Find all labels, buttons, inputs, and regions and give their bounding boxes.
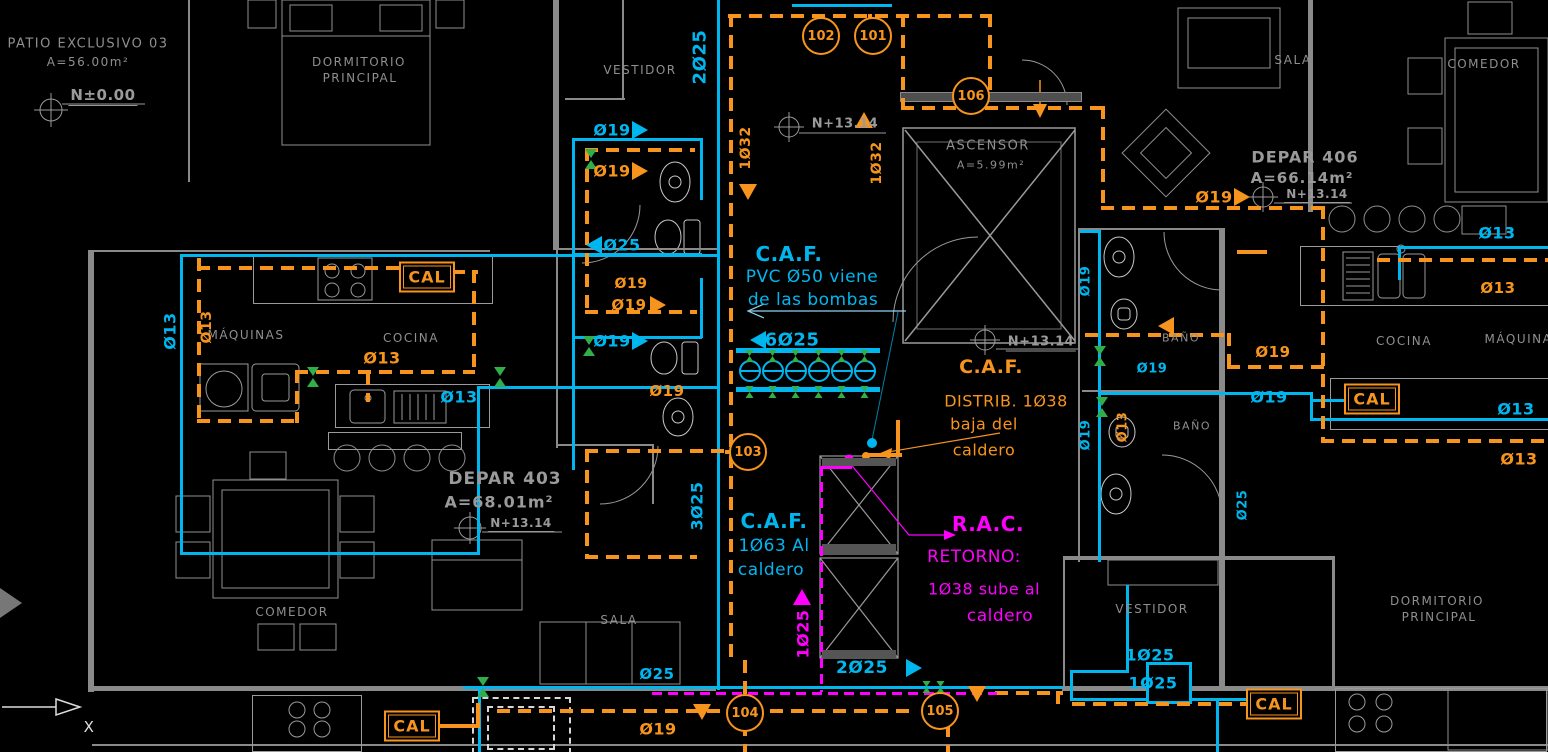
wall-segment	[188, 0, 190, 182]
pipe-hot-water-segment	[1377, 258, 1548, 262]
viewport-triangle-icon	[0, 588, 22, 618]
note-caf-distrib-title: C.A.F.	[959, 356, 1023, 378]
pipe-size-label: Ø13	[1500, 450, 1537, 469]
valve-icon	[746, 386, 755, 398]
flow-arrow-icon	[968, 686, 986, 702]
pipe-cold-water-segment	[1080, 230, 1100, 233]
room-label: PRINCIPAL	[1402, 610, 1477, 624]
room-label: MÁQUINAS	[1485, 332, 1548, 346]
pipe-size-label: Ø13	[161, 312, 180, 349]
pipe-size-label: Ø19	[593, 121, 630, 140]
pipe-size-label: Ø19	[1250, 388, 1287, 407]
pipe-hot-water-segment	[1321, 439, 1548, 443]
level-elevation-label: N+13.14	[1006, 335, 1076, 352]
wall-segment	[556, 444, 654, 446]
note-caf-supply-line1: PVC Ø50 viene	[746, 267, 879, 287]
pipe-hot-water-stub	[896, 420, 900, 456]
pipe-hot-water-segment	[585, 148, 589, 314]
note-caf-boiler-title: C.A.F.	[740, 509, 807, 533]
flow-arrow-icon	[793, 589, 811, 605]
pipe-hot-water-segment	[1072, 702, 1248, 706]
pipe-size-label: 1Ø32	[869, 141, 885, 184]
wall-segment	[556, 250, 558, 448]
note-caf-boiler-line1: 1Ø63 Al	[738, 536, 809, 556]
pipe-return-stub	[820, 466, 852, 469]
pipe-size-label: Ø13	[440, 388, 477, 407]
pipe-cold-water-segment	[180, 254, 183, 554]
pipe-cold-water-segment	[700, 278, 703, 338]
valve-icon	[769, 350, 778, 362]
riser-reference-bubble: 103	[729, 433, 767, 471]
valve-icon	[838, 350, 847, 362]
level-markers	[34, 93, 1352, 544]
valve-icon	[307, 367, 319, 387]
pipe-hot-water-segment	[366, 372, 370, 402]
room-label: VESTIDOR	[603, 63, 676, 77]
pipe-cold-water-segment	[1398, 246, 1401, 280]
riser-reference-bubble: 106	[952, 77, 990, 115]
pipe-size-label: Ø13	[199, 311, 215, 344]
pipe-hot-water-segment	[988, 14, 992, 94]
wall-segment	[1063, 556, 1335, 560]
pipe-size-label: 1Ø32	[738, 126, 754, 169]
flow-arrow-icon	[739, 184, 757, 200]
pipe-size-label: 1Ø25	[794, 610, 813, 659]
pipe-hot-water-segment	[901, 106, 1105, 110]
valve-icon	[815, 386, 824, 398]
pipe-size-label: 2Ø25	[836, 658, 888, 678]
pipe-size-label: 6Ø25	[765, 330, 820, 351]
riser-reference-bubble: 105	[921, 692, 959, 730]
axis-marker	[0, 588, 80, 715]
pipe-return-segment	[820, 466, 823, 692]
flow-arrow-icon	[1234, 188, 1250, 206]
door-arcs	[582, 60, 1222, 515]
pipe-size-label: Ø19	[1195, 188, 1232, 207]
note-caf-distrib-line1: DISTRIB. 1Ø38	[944, 392, 1068, 411]
pipe-size-label: Ø13	[1116, 412, 1131, 443]
room-label: PATIO EXCLUSIVO 03	[7, 37, 168, 52]
pipe-cold-water-segment	[1310, 392, 1313, 420]
wall-segment	[88, 250, 94, 692]
flow-arrow-icon	[693, 704, 711, 720]
wall-segment	[1332, 560, 1335, 690]
room-label: COCINA	[383, 331, 439, 345]
level-elevation-label: N+13.14	[810, 117, 880, 134]
pipe-size-label: Ø19	[593, 332, 630, 351]
wall-segment	[652, 446, 654, 504]
valve-icon	[1096, 397, 1108, 417]
valve-icon	[792, 350, 801, 362]
counter-outline	[1300, 246, 1548, 306]
apartment-area-label: DEPAR 403	[448, 469, 561, 489]
pipe-size-label: Ø25	[639, 665, 674, 683]
counter-outline	[253, 256, 493, 304]
riser-reference-bubble: 104	[726, 694, 764, 732]
pipe-cold-water-segment	[572, 138, 575, 470]
manifold-header-bar	[736, 387, 880, 392]
pipe-size-label: Ø19	[1079, 420, 1094, 451]
pipe-hot-water-segment	[728, 14, 990, 18]
valve-icon	[861, 386, 870, 398]
level-elevation-label: N+13.14	[1284, 187, 1350, 203]
pipe-hot-water-segment	[295, 370, 299, 423]
pipe-hot-water-segment	[1101, 206, 1325, 210]
note-caf-supply-title: C.A.F.	[755, 242, 822, 266]
apartment-area-label: A=68.01m²	[444, 493, 553, 512]
pipe-size-label: 1Ø25	[1129, 674, 1178, 693]
room-label: SALA	[1274, 53, 1311, 67]
note-rac-title: R.A.C.	[952, 512, 1024, 536]
water-heater-tag: CAL	[399, 262, 455, 293]
pipe-cold-water-segment	[1098, 230, 1101, 562]
water-heater-tag: CAL	[1246, 689, 1302, 720]
pipe-size-label: Ø13	[363, 349, 400, 368]
pipe-hot-water-segment	[585, 449, 589, 557]
axis-x-label: X	[84, 718, 95, 736]
pipe-size-label: Ø19	[1255, 343, 1290, 361]
pipe-size-label: 2Ø25	[690, 30, 711, 85]
pipe-size-label: Ø25	[603, 236, 640, 255]
pipe-size-label: 3Ø25	[688, 482, 707, 531]
caf-manifold	[740, 361, 875, 381]
pipe-cold-water-segment	[1398, 246, 1548, 249]
pipe-cold-water-segment	[1216, 698, 1219, 752]
pipe-cold-water-segment	[717, 0, 720, 690]
valve-icon	[923, 681, 932, 693]
valve-icon	[1094, 346, 1106, 366]
floor-plan-canvas: C.A.F. PVC Ø50 viene de las bombas C.A.F…	[0, 0, 1548, 752]
room-label: A=5.99m²	[957, 159, 1025, 172]
counter-outline	[252, 695, 362, 752]
pipe-hot-water-segment	[729, 14, 733, 662]
note-rac-line2: 1Ø38 sube al	[928, 580, 1040, 599]
duct-shafts	[820, 456, 898, 658]
room-label: BAÑO	[1173, 420, 1211, 433]
apartment-area-label: DEPAR 406	[1251, 148, 1358, 167]
pipe-size-label: Ø19	[611, 296, 646, 314]
pipe-hot-water-stub	[437, 724, 480, 728]
note-caf-distrib-line3: caldero	[953, 441, 1016, 460]
valve-icon	[494, 367, 506, 387]
water-heater-tag: CAL	[1344, 384, 1400, 415]
pipe-size-label: Ø19	[1079, 266, 1094, 297]
shaft-sill	[822, 544, 896, 555]
pipe-cold-water-segment	[1070, 670, 1073, 700]
wall-segment	[88, 250, 490, 252]
room-label: VESTIDOR	[1115, 602, 1188, 616]
wall-segment	[565, 98, 625, 100]
flow-arrow-icon	[632, 121, 648, 139]
pipe-hot-water-segment	[1227, 333, 1231, 368]
room-label: DORMITORIO	[312, 55, 406, 69]
riser-reference-bubble: 102	[802, 17, 840, 55]
valve-icon	[815, 350, 824, 362]
pipe-hot-water-segment	[197, 419, 297, 423]
pipe-size-label: Ø13	[1480, 279, 1515, 297]
pipe-hot-water-stub	[476, 703, 480, 726]
pipe-cold-water-segment	[700, 138, 703, 200]
pipe-hot-water-segment	[1321, 206, 1325, 442]
pipe-size-label: 1Ø25	[1126, 646, 1175, 665]
room-label: MÁQUINAS	[208, 328, 285, 342]
valve-icon	[838, 386, 847, 398]
counter-outline	[1335, 688, 1547, 752]
room-label: COMEDOR	[255, 605, 328, 619]
pipe-hot-water-segment	[1101, 106, 1105, 210]
level-elevation-label: N+13.14	[488, 516, 554, 532]
pipe-hot-water-segment	[197, 266, 403, 270]
pipe-size-label: Ø13	[1478, 224, 1515, 243]
note-caf-distrib-line2: baja del	[950, 415, 1018, 434]
flow-arrow-icon	[586, 236, 602, 254]
valve-icon	[792, 386, 801, 398]
flow-arrow-icon	[632, 332, 648, 350]
note-caf-boiler-line2: caldero	[738, 560, 804, 580]
room-label: PRINCIPAL	[323, 71, 398, 85]
level-elevation-label: N±0.00	[68, 86, 137, 106]
pipe-hot-water-segment	[295, 370, 475, 374]
valve-icon	[861, 350, 870, 362]
wall-segment	[1063, 560, 1065, 690]
pipe-hot-water-segment	[901, 14, 905, 110]
pipe-cold-water-segment	[1070, 670, 1128, 673]
room-label: BAÑO	[1162, 332, 1200, 345]
pipe-size-label: Ø19	[593, 162, 630, 181]
pipe-hot-water-segment	[585, 148, 695, 152]
room-label: DORMITORIO	[1390, 594, 1484, 608]
wall-segment	[553, 0, 559, 250]
flow-arrow-icon	[632, 162, 648, 180]
pipe-size-label: Ø13	[1497, 400, 1534, 419]
room-label: SALA	[600, 613, 637, 627]
pipe-hot-water-segment	[1056, 691, 1060, 707]
flow-arrow-icon	[650, 296, 666, 314]
pipe-hot-water-segment	[472, 270, 476, 374]
valve-icon	[769, 386, 778, 398]
note-rac-line1: RETORNO:	[927, 547, 1021, 567]
pipe-size-label: Ø25	[1236, 490, 1251, 521]
wall-segment	[1219, 228, 1225, 690]
pipe-size-label: Ø19	[639, 720, 676, 739]
pipe-size-label: Ø19	[649, 382, 684, 400]
pipe-size-label: Ø19	[615, 276, 648, 292]
pipe-cold-water-segment	[180, 552, 480, 555]
riser-reference-bubble: 101	[854, 17, 892, 55]
pipe-hot-water-segment	[1227, 365, 1325, 369]
room-label: A=56.00m²	[47, 55, 130, 69]
pipe-hot-water-segment	[995, 691, 1063, 695]
pipe-size-label: Ø19	[1137, 362, 1168, 377]
counter-outline	[328, 432, 462, 450]
room-label: ASCENSOR	[946, 139, 1030, 154]
wall-segment	[622, 0, 624, 98]
water-heater-tag: CAL	[384, 711, 440, 742]
note-rac-line3: caldero	[967, 606, 1033, 626]
room-label: COMEDOR	[1447, 57, 1520, 71]
pipe-cold-water-segment	[792, 4, 892, 7]
shaft-sill	[822, 458, 896, 466]
valve-icon	[477, 677, 489, 697]
flow-arrow-icon	[906, 659, 922, 677]
pipe-hot-water-stub	[1237, 250, 1267, 254]
pipe-hot-water-segment	[585, 555, 697, 559]
plan-linework-layer	[0, 0, 1548, 752]
valve-icon	[746, 350, 755, 362]
note-caf-supply-line2: de las bombas	[748, 290, 878, 310]
room-label: COCINA	[1376, 334, 1432, 348]
apartment-area-label: A=66.14m²	[1251, 169, 1354, 187]
pipe-hot-water-segment	[585, 449, 737, 453]
